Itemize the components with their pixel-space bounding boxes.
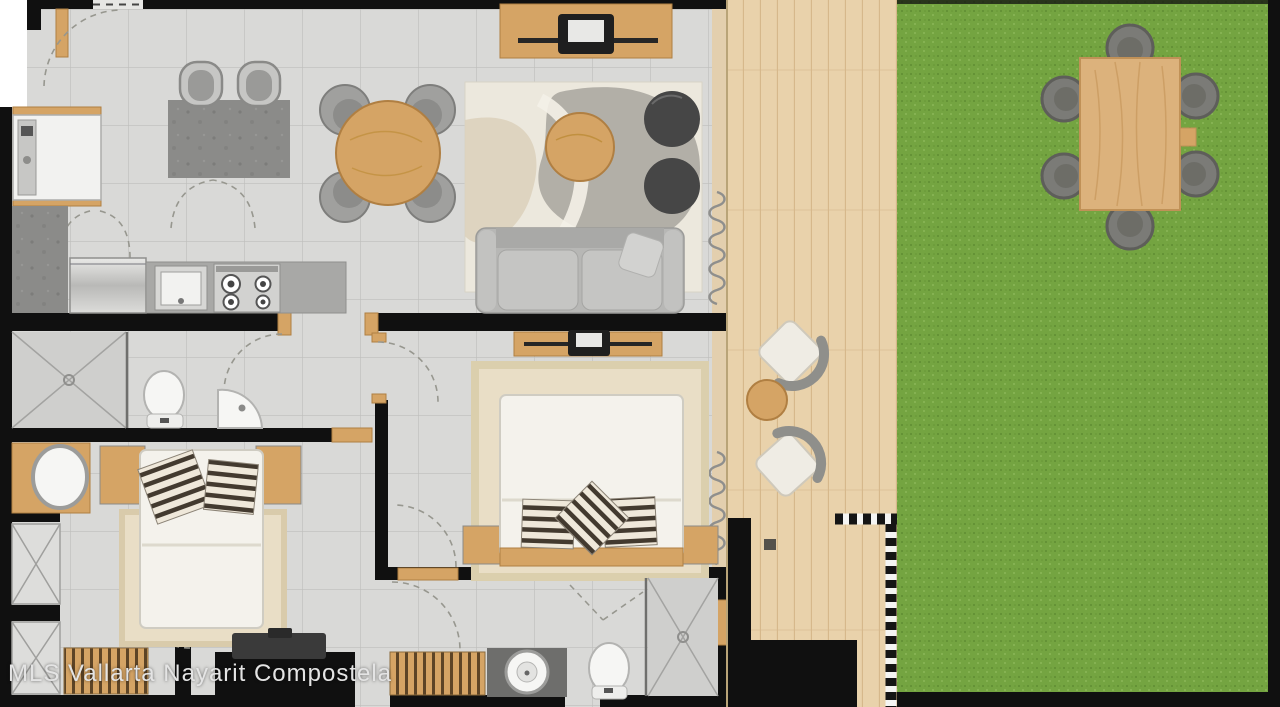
living-room: [465, 4, 702, 313]
dining-area: [320, 85, 455, 222]
kitchen-counter-left: [12, 206, 68, 313]
floor-plan: MLS Vallarta Nayarit Compostela: [0, 0, 1280, 707]
sofa: [476, 228, 684, 313]
bedroom-2: [463, 330, 718, 577]
toilet-1: [144, 371, 184, 428]
kitchen-island: [168, 100, 290, 178]
coffee-table: [546, 113, 614, 181]
bench-slatted: [390, 652, 485, 695]
nightstand: [680, 526, 718, 564]
stove: [214, 264, 280, 312]
vanity-1: [12, 443, 90, 513]
floor-plan-drawing: [0, 0, 1280, 707]
top-wall-window: [93, 0, 143, 9]
pillow-striped: [204, 460, 259, 515]
side-table: [747, 380, 787, 420]
shower-2: [646, 578, 718, 696]
bar-stool: [238, 62, 280, 106]
dresser-slatted: [64, 648, 148, 694]
bar-stool: [180, 62, 222, 106]
fridge: [70, 258, 146, 313]
tv-console: [500, 4, 672, 58]
outdoor-table: [1080, 58, 1180, 210]
pouf: [644, 158, 700, 214]
toilet-2: [589, 643, 629, 699]
deck-drain: [764, 539, 776, 550]
kitchen-sink: [155, 266, 207, 310]
exterior-notch: [0, 0, 27, 107]
pouf: [644, 91, 700, 147]
nightstand: [463, 526, 503, 564]
dining-table: [336, 101, 440, 205]
nightstand: [100, 446, 145, 504]
tv-console-bedroom2: [514, 330, 662, 356]
